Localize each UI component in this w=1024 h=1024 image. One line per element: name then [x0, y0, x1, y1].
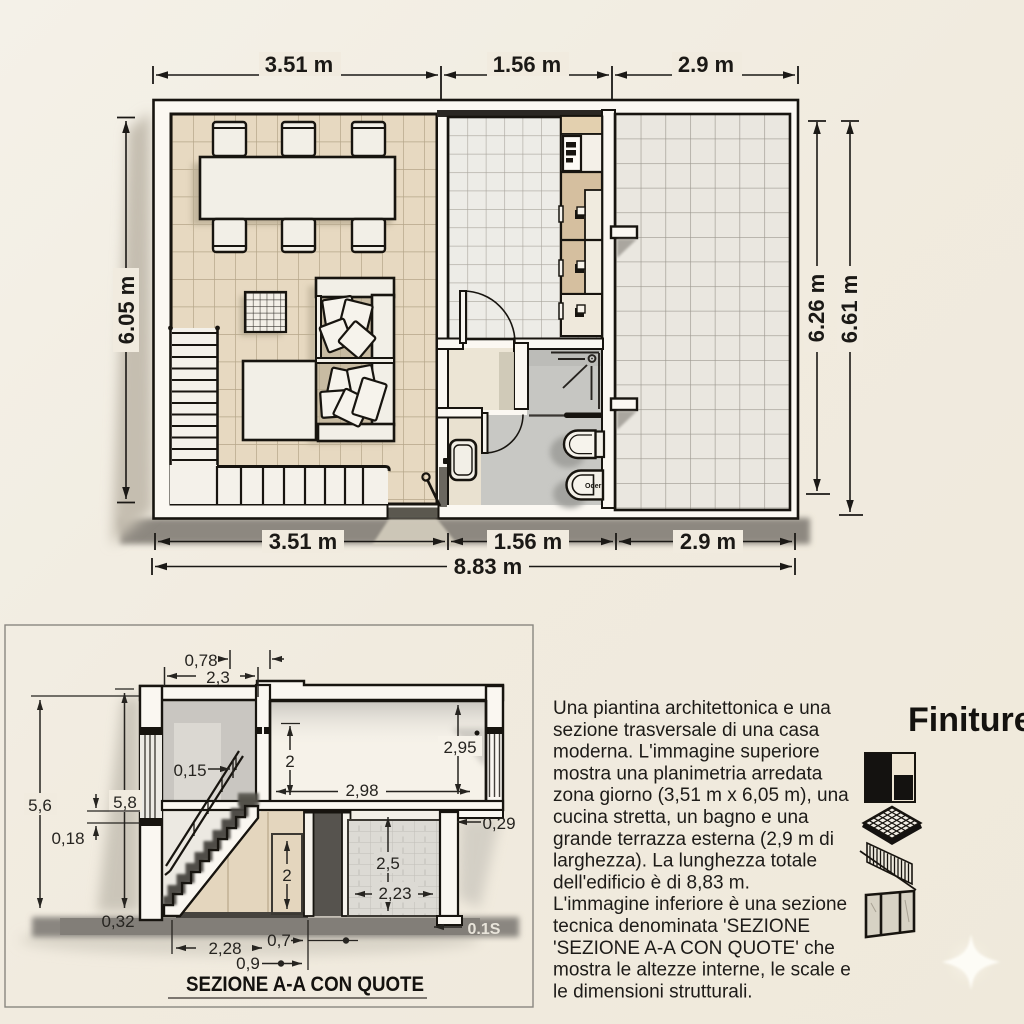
svg-text:2: 2: [282, 866, 291, 885]
svg-text:1.56 m: 1.56 m: [493, 52, 562, 77]
svg-text:sezione trasversale di una cas: sezione trasversale di una casa: [553, 720, 820, 741]
svg-text:0,18: 0,18: [51, 829, 84, 848]
svg-text:2,3: 2,3: [206, 668, 230, 687]
svg-text:5,8: 5,8: [113, 793, 137, 812]
svg-text:3.51 m: 3.51 m: [269, 529, 338, 554]
svg-text:grande terrazza esterna (2,9 m: grande terrazza esterna (2,9 m di: [553, 829, 834, 850]
svg-text:dell'edificio è di 8,83 m.: dell'edificio è di 8,83 m.: [553, 872, 750, 893]
svg-text:mostra una planimetria arredat: mostra una planimetria arredata: [553, 763, 823, 784]
svg-text:8.83 m: 8.83 m: [454, 554, 523, 579]
svg-text:2,98: 2,98: [345, 781, 378, 800]
svg-text:larghezza). La lunghezza total: larghezza). La lunghezza totale: [553, 851, 817, 872]
svg-text:Oder: Oder: [585, 483, 602, 490]
svg-text:2,23: 2,23: [378, 884, 411, 903]
svg-text:SEZIONE A-A CON QUOTE: SEZIONE A-A CON QUOTE: [186, 973, 424, 996]
svg-text:0,15: 0,15: [173, 761, 206, 780]
svg-text:cucina stretta, un bagno e una: cucina stretta, un bagno e una: [553, 807, 809, 828]
svg-text:2,5: 2,5: [376, 854, 400, 873]
svg-text:6.05 m: 6.05 m: [114, 276, 139, 345]
svg-text:2.9 m: 2.9 m: [680, 529, 736, 554]
svg-text:'SEZIONE A-A CON QUOTE' che: 'SEZIONE A-A CON QUOTE' che: [553, 938, 835, 959]
svg-text:Una piantina architettonica e: Una piantina architettonica e una: [553, 698, 831, 719]
svg-text:L'immagine inferiore è una sez: L'immagine inferiore è una sezione: [553, 894, 847, 915]
svg-text:moderna. L'immagine superiore: moderna. L'immagine superiore: [553, 742, 820, 763]
svg-text:zona giorno (3,51 m x 6,05 m),: zona giorno (3,51 m x 6,05 m), una: [553, 785, 849, 806]
svg-text:0,29: 0,29: [482, 814, 515, 833]
svg-text:0.1S: 0.1S: [468, 921, 501, 938]
svg-text:0,7: 0,7: [267, 931, 291, 950]
svg-text:5,6: 5,6: [28, 796, 52, 815]
svg-text:tecnica denominata 'SEZIONE: tecnica denominata 'SEZIONE: [553, 916, 810, 937]
svg-text:2: 2: [285, 752, 294, 771]
svg-text:3.51 m: 3.51 m: [265, 52, 334, 77]
svg-text:6.26 m: 6.26 m: [804, 274, 829, 343]
svg-text:0,32: 0,32: [101, 912, 134, 931]
svg-text:2,95: 2,95: [443, 738, 476, 757]
svg-text:2.9 m: 2.9 m: [678, 52, 734, 77]
svg-text:0,9: 0,9: [236, 954, 260, 973]
svg-text:1.56 m: 1.56 m: [494, 529, 563, 554]
svg-text:le dimensioni strutturali.: le dimensioni strutturali.: [553, 981, 753, 1002]
svg-text:Finiture: Finiture: [908, 701, 1024, 739]
svg-text:6.61 m: 6.61 m: [837, 275, 862, 344]
svg-text:mostra le altezze interne, le: mostra le altezze interne, le scale e: [553, 960, 851, 981]
